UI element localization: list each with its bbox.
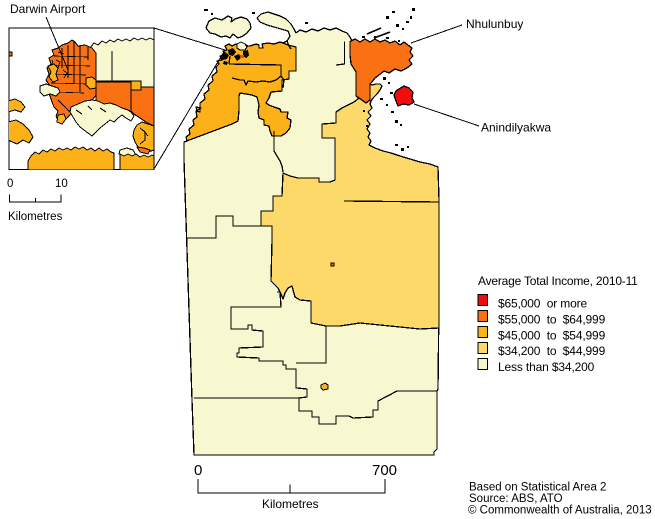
svg-text:Less than $34,200: Less than $34,200 (498, 360, 595, 374)
svg-text:700: 700 (372, 462, 397, 479)
svg-text:$45,000 to $54,999: $45,000 to $54,999 (498, 328, 606, 342)
svg-text:Kilometres: Kilometres (8, 211, 63, 223)
svg-text:Kilometres: Kilometres (262, 497, 319, 511)
svg-text:10: 10 (55, 178, 68, 190)
svg-text:$34,200 to $44,999: $34,200 to $44,999 (498, 344, 606, 358)
svg-text:$55,000 to $64,999: $55,000 to $64,999 (498, 312, 606, 326)
svg-text:Anindilyakwa: Anindilyakwa (481, 121, 551, 135)
svg-text:0: 0 (7, 178, 13, 190)
svg-text:Based on Statistical Area 2: Based on Statistical Area 2 (469, 482, 606, 494)
svg-text:$65,000 or more: $65,000 or more (498, 297, 587, 311)
svg-text:© Commonwealth of Australia, 2: © Commonwealth of Australia, 2013 (468, 505, 652, 517)
svg-text:Nhulunbuy: Nhulunbuy (466, 17, 523, 31)
svg-text:0: 0 (194, 462, 202, 479)
svg-text:Source: ABS, ATO: Source: ABS, ATO (469, 493, 563, 505)
svg-text:Darwin Airport: Darwin Airport (10, 2, 86, 16)
svg-text:Average Total Income, 2010-11: Average Total Income, 2010-11 (478, 274, 638, 288)
